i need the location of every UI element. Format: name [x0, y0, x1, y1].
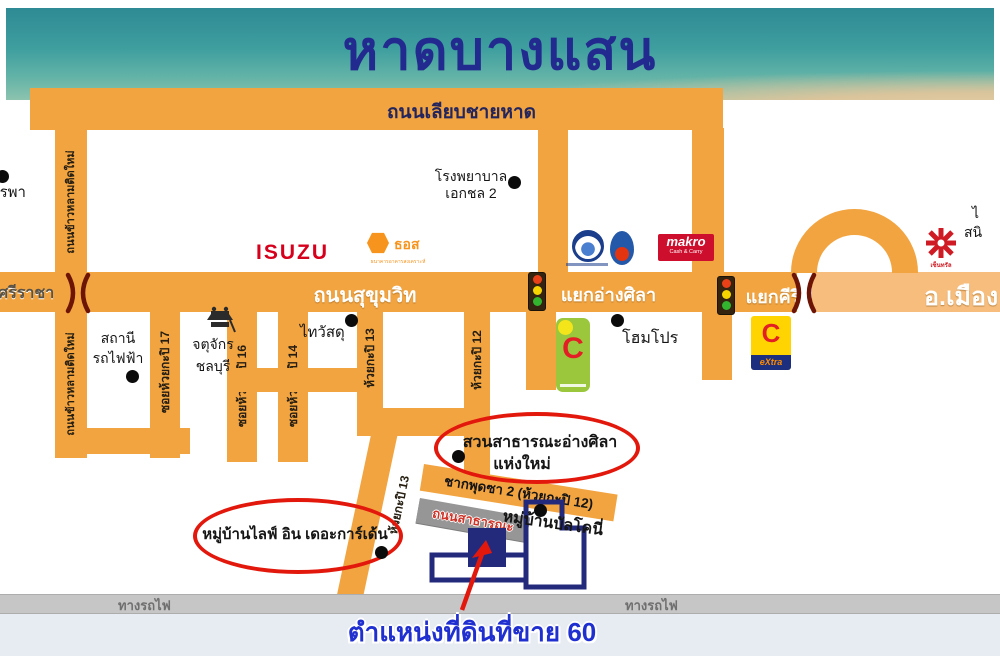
park-label-line2: แห่งใหม่ [452, 452, 592, 477]
bigc-logo: C [556, 318, 590, 392]
thai-watsadu-marker-dot [345, 314, 358, 327]
makro-logo: makro Cash & Carry [658, 234, 714, 261]
life-garden-village-label: หมู่บ้านไลฟ์ อิน เดอะการ์เด้น [202, 522, 388, 546]
overpass-arch [791, 209, 918, 273]
railway-label-right: ทางรถไฟ [625, 595, 678, 616]
ghb-logo-text: ธอส [394, 234, 420, 256]
bigc-extra-c-glyph: C [751, 318, 791, 349]
bigc-extra-logo: C eXtra [751, 316, 791, 370]
burapha-label: ม.บูรพา [0, 180, 26, 204]
land-sale-caption: ตำแหน่งที่ดินที่ขาย 60 ตรว. [318, 612, 626, 656]
chatuchak-label-line2: ชลบุรี [184, 356, 242, 378]
road-break-icon [62, 272, 94, 314]
map-title: หาดบางแสน [6, 8, 994, 94]
road-soi13-upper-label: ห้วยกะปิ 13 [358, 303, 382, 413]
homepro-label: โฮมโปร [622, 326, 678, 351]
bigc-extra-band-label: eXtra [751, 355, 791, 370]
hospital-marker-dot [508, 176, 521, 189]
road-hospital-vertical [538, 128, 568, 275]
makro-logo-subtext: Cash & Carry [658, 249, 714, 255]
road-khaolam-upper-label: ถนนข้าวหลามติดใหม่ [59, 127, 83, 277]
junction-angsila-label: แยกอ่างศิลา [551, 280, 666, 309]
life-garden-marker-dot [375, 546, 388, 559]
ghb-logo-subtext: ธนาคารอาคารสงเคราะห์ [366, 258, 430, 266]
market-stall-icon [203, 306, 237, 334]
gas-station-logo-icon [610, 231, 634, 265]
location-arrow-icon [444, 536, 500, 614]
makro-logo-text: makro [658, 234, 714, 249]
edge-text-fragment: สนิ [964, 222, 982, 244]
road-soi12-label: ห้วยกะปิ 12 [465, 305, 489, 415]
bigc-c-glyph: C [556, 332, 590, 366]
traffic-light-icon [717, 276, 735, 315]
road-angsila-lower [526, 312, 556, 390]
map-canvas: หาดบางแสน ถนนเลียบชายหาด ถนนข้าวหลามติดใ… [0, 0, 1000, 656]
thai-watsadu-label: ไทวัสดุ [300, 320, 345, 344]
central-logo-caption: เซ็นทรัล [914, 260, 968, 270]
station-label-line1: สถานี [88, 328, 148, 350]
station-label-line2: รถไฟฟ้า [84, 348, 152, 370]
isuzu-logo: ISUZU [256, 241, 329, 265]
municipality-emblem-icon [572, 230, 604, 262]
road-kiri-lower [702, 312, 732, 380]
road-connector-west [84, 428, 190, 454]
destination-mueang-label: อ.เมือง [924, 277, 1000, 317]
road-break-icon [788, 272, 820, 314]
central-starburst-icon [924, 226, 958, 260]
municipality-emblem-caption [566, 263, 608, 266]
ghb-bank-logo: ธอส ธนาคารอาคารสงเคราะห์ [366, 230, 430, 270]
park-marker-dot [452, 450, 465, 463]
road-beachfront: ถนนเลียบชายหาด [30, 88, 723, 130]
road-beachfront-label: ถนนเลียบชายหาด [30, 97, 723, 127]
road-soi17-label: ซอยห้วยกะปิ 17 [153, 302, 177, 442]
destination-sriracha-label: อ.ศรีราชา [0, 281, 54, 306]
railway-label-left: ทางรถไฟ [118, 595, 171, 616]
beach-photo: หาดบางแสน [6, 8, 994, 100]
ghb-hexagon-icon [366, 232, 390, 254]
traffic-light-icon [528, 272, 546, 311]
road-connector-mid [227, 368, 360, 392]
station-marker-dot [126, 370, 139, 383]
hospital-label-line2: เอกชล 2 [432, 183, 510, 205]
road-khaolam-lower-label: ถนนข้าวหลามติดใหม่ [59, 309, 83, 459]
chatuchak-label-line1: จตุจักร [184, 334, 242, 356]
